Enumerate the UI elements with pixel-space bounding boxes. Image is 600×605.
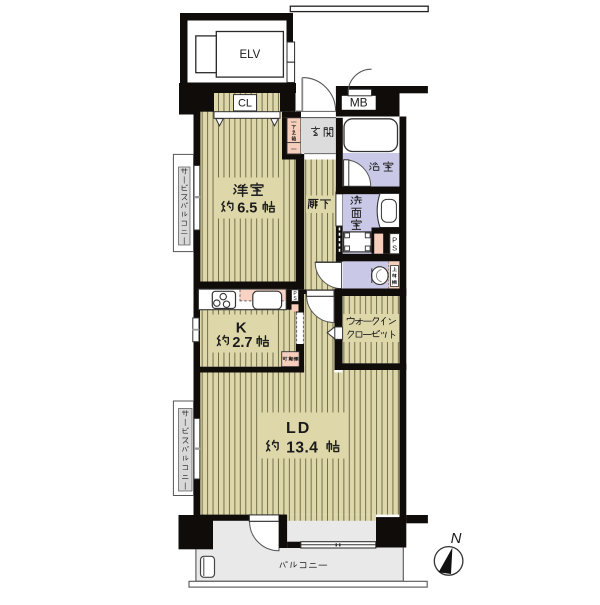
svg-text:CL: CL bbox=[238, 97, 252, 109]
svg-text:13.4: 13.4 bbox=[286, 440, 318, 457]
svg-text:LD: LD bbox=[286, 420, 311, 437]
svg-text:MB: MB bbox=[350, 96, 368, 110]
svg-text:ELV: ELV bbox=[239, 49, 260, 61]
svg-text:S: S bbox=[392, 244, 397, 253]
svg-text:N: N bbox=[451, 530, 462, 547]
svg-text:6.5: 6.5 bbox=[237, 201, 257, 217]
svg-text:2.7: 2.7 bbox=[232, 335, 252, 351]
